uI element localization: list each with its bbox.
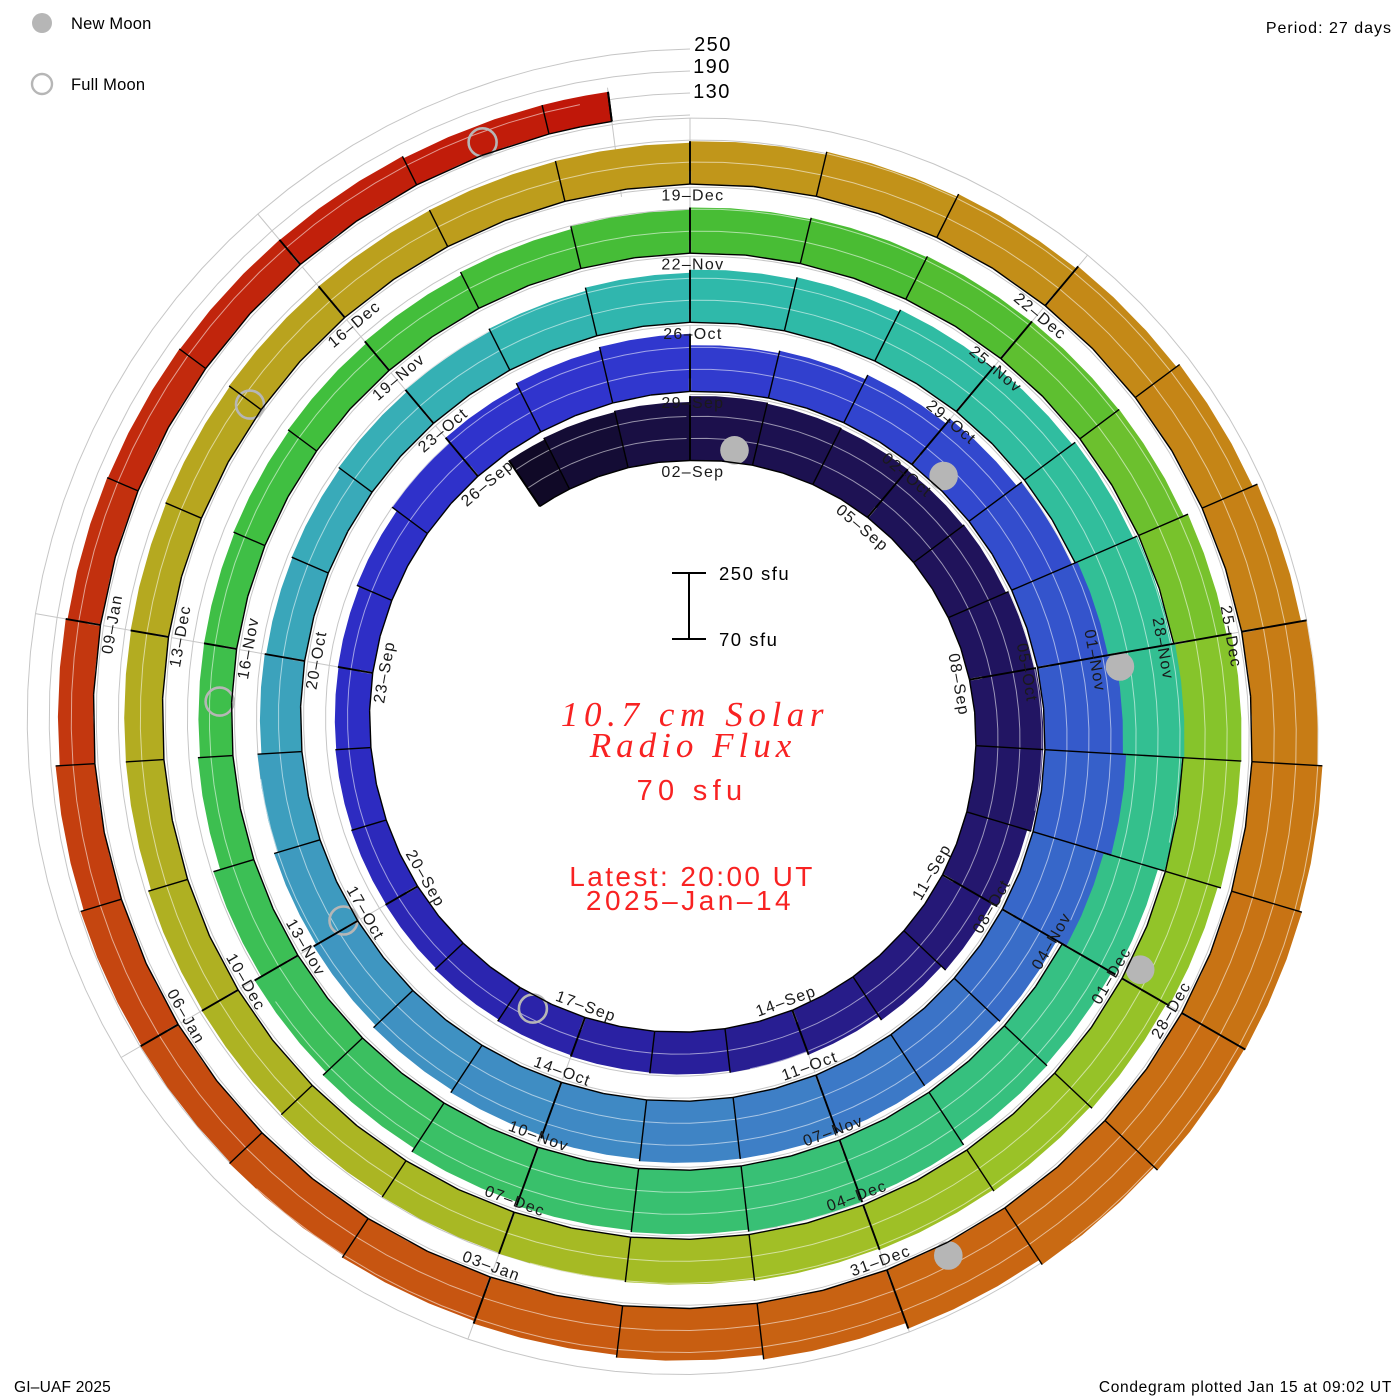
svg-text:Radio Flux: Radio Flux xyxy=(589,726,797,765)
svg-text:GI–UAF 2025: GI–UAF 2025 xyxy=(14,1379,111,1396)
svg-text:250 sfu: 250 sfu xyxy=(719,563,790,584)
svg-text:250: 250 xyxy=(694,34,732,56)
svg-text:2025–Jan–14: 2025–Jan–14 xyxy=(586,885,794,916)
svg-text:70 sfu: 70 sfu xyxy=(637,775,748,807)
svg-text:190: 190 xyxy=(693,56,731,78)
svg-text:Period: 27 days: Period: 27 days xyxy=(1266,20,1392,37)
svg-text:New Moon: New Moon xyxy=(71,15,151,33)
svg-text:19–Dec: 19–Dec xyxy=(661,188,724,205)
svg-text:Condegram plotted Jan 15 at 09: Condegram plotted Jan 15 at 09:02 UT xyxy=(1099,1379,1392,1396)
svg-text:Full Moon: Full Moon xyxy=(71,76,145,94)
svg-text:26–Oct: 26–Oct xyxy=(663,326,722,343)
svg-text:29–Sep: 29–Sep xyxy=(661,395,724,412)
svg-text:130: 130 xyxy=(693,81,731,103)
svg-text:02–Sep: 02–Sep xyxy=(661,464,724,481)
svg-text:22–Nov: 22–Nov xyxy=(661,257,724,274)
svg-text:70 sfu: 70 sfu xyxy=(719,629,778,650)
